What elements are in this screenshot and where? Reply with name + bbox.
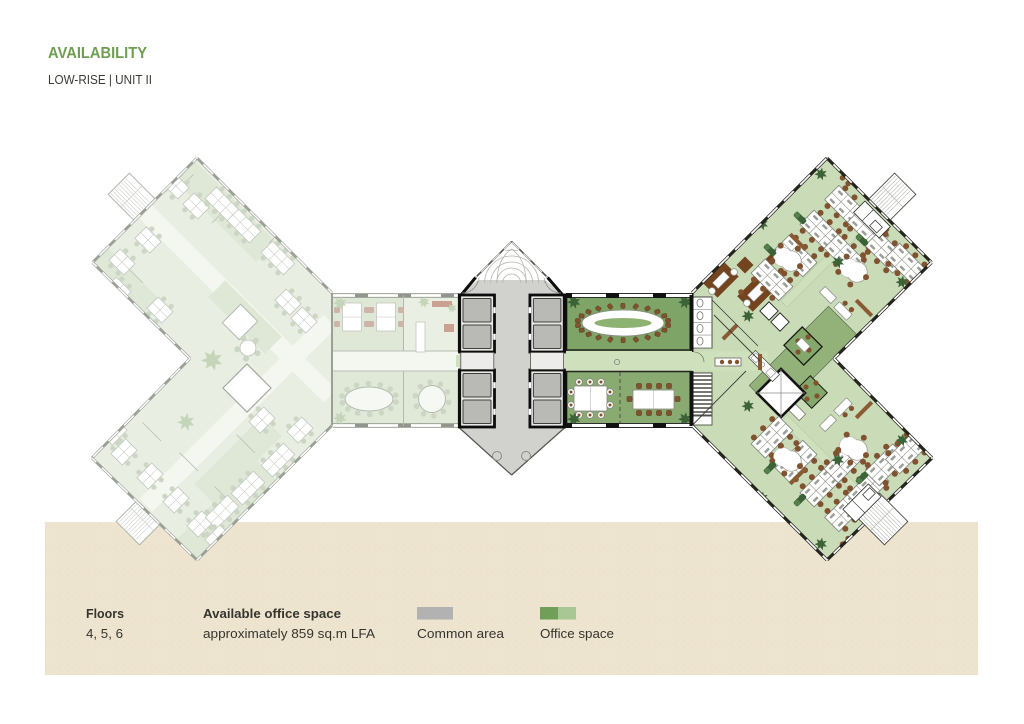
svg-text:LOW-RISE | UNIT II: LOW-RISE | UNIT II: [48, 72, 152, 87]
svg-text:Available office space: Available office space: [203, 606, 341, 621]
svg-text:Office space: Office space: [540, 626, 614, 641]
svg-text:Common area: Common area: [417, 626, 505, 641]
svg-text:AVAILABILITY: AVAILABILITY: [48, 45, 147, 62]
svg-text:Floors: Floors: [86, 606, 124, 621]
svg-text:approximately 859 sq.m LFA: approximately 859 sq.m LFA: [203, 626, 375, 641]
svg-text:4, 5, 6: 4, 5, 6: [86, 626, 123, 641]
